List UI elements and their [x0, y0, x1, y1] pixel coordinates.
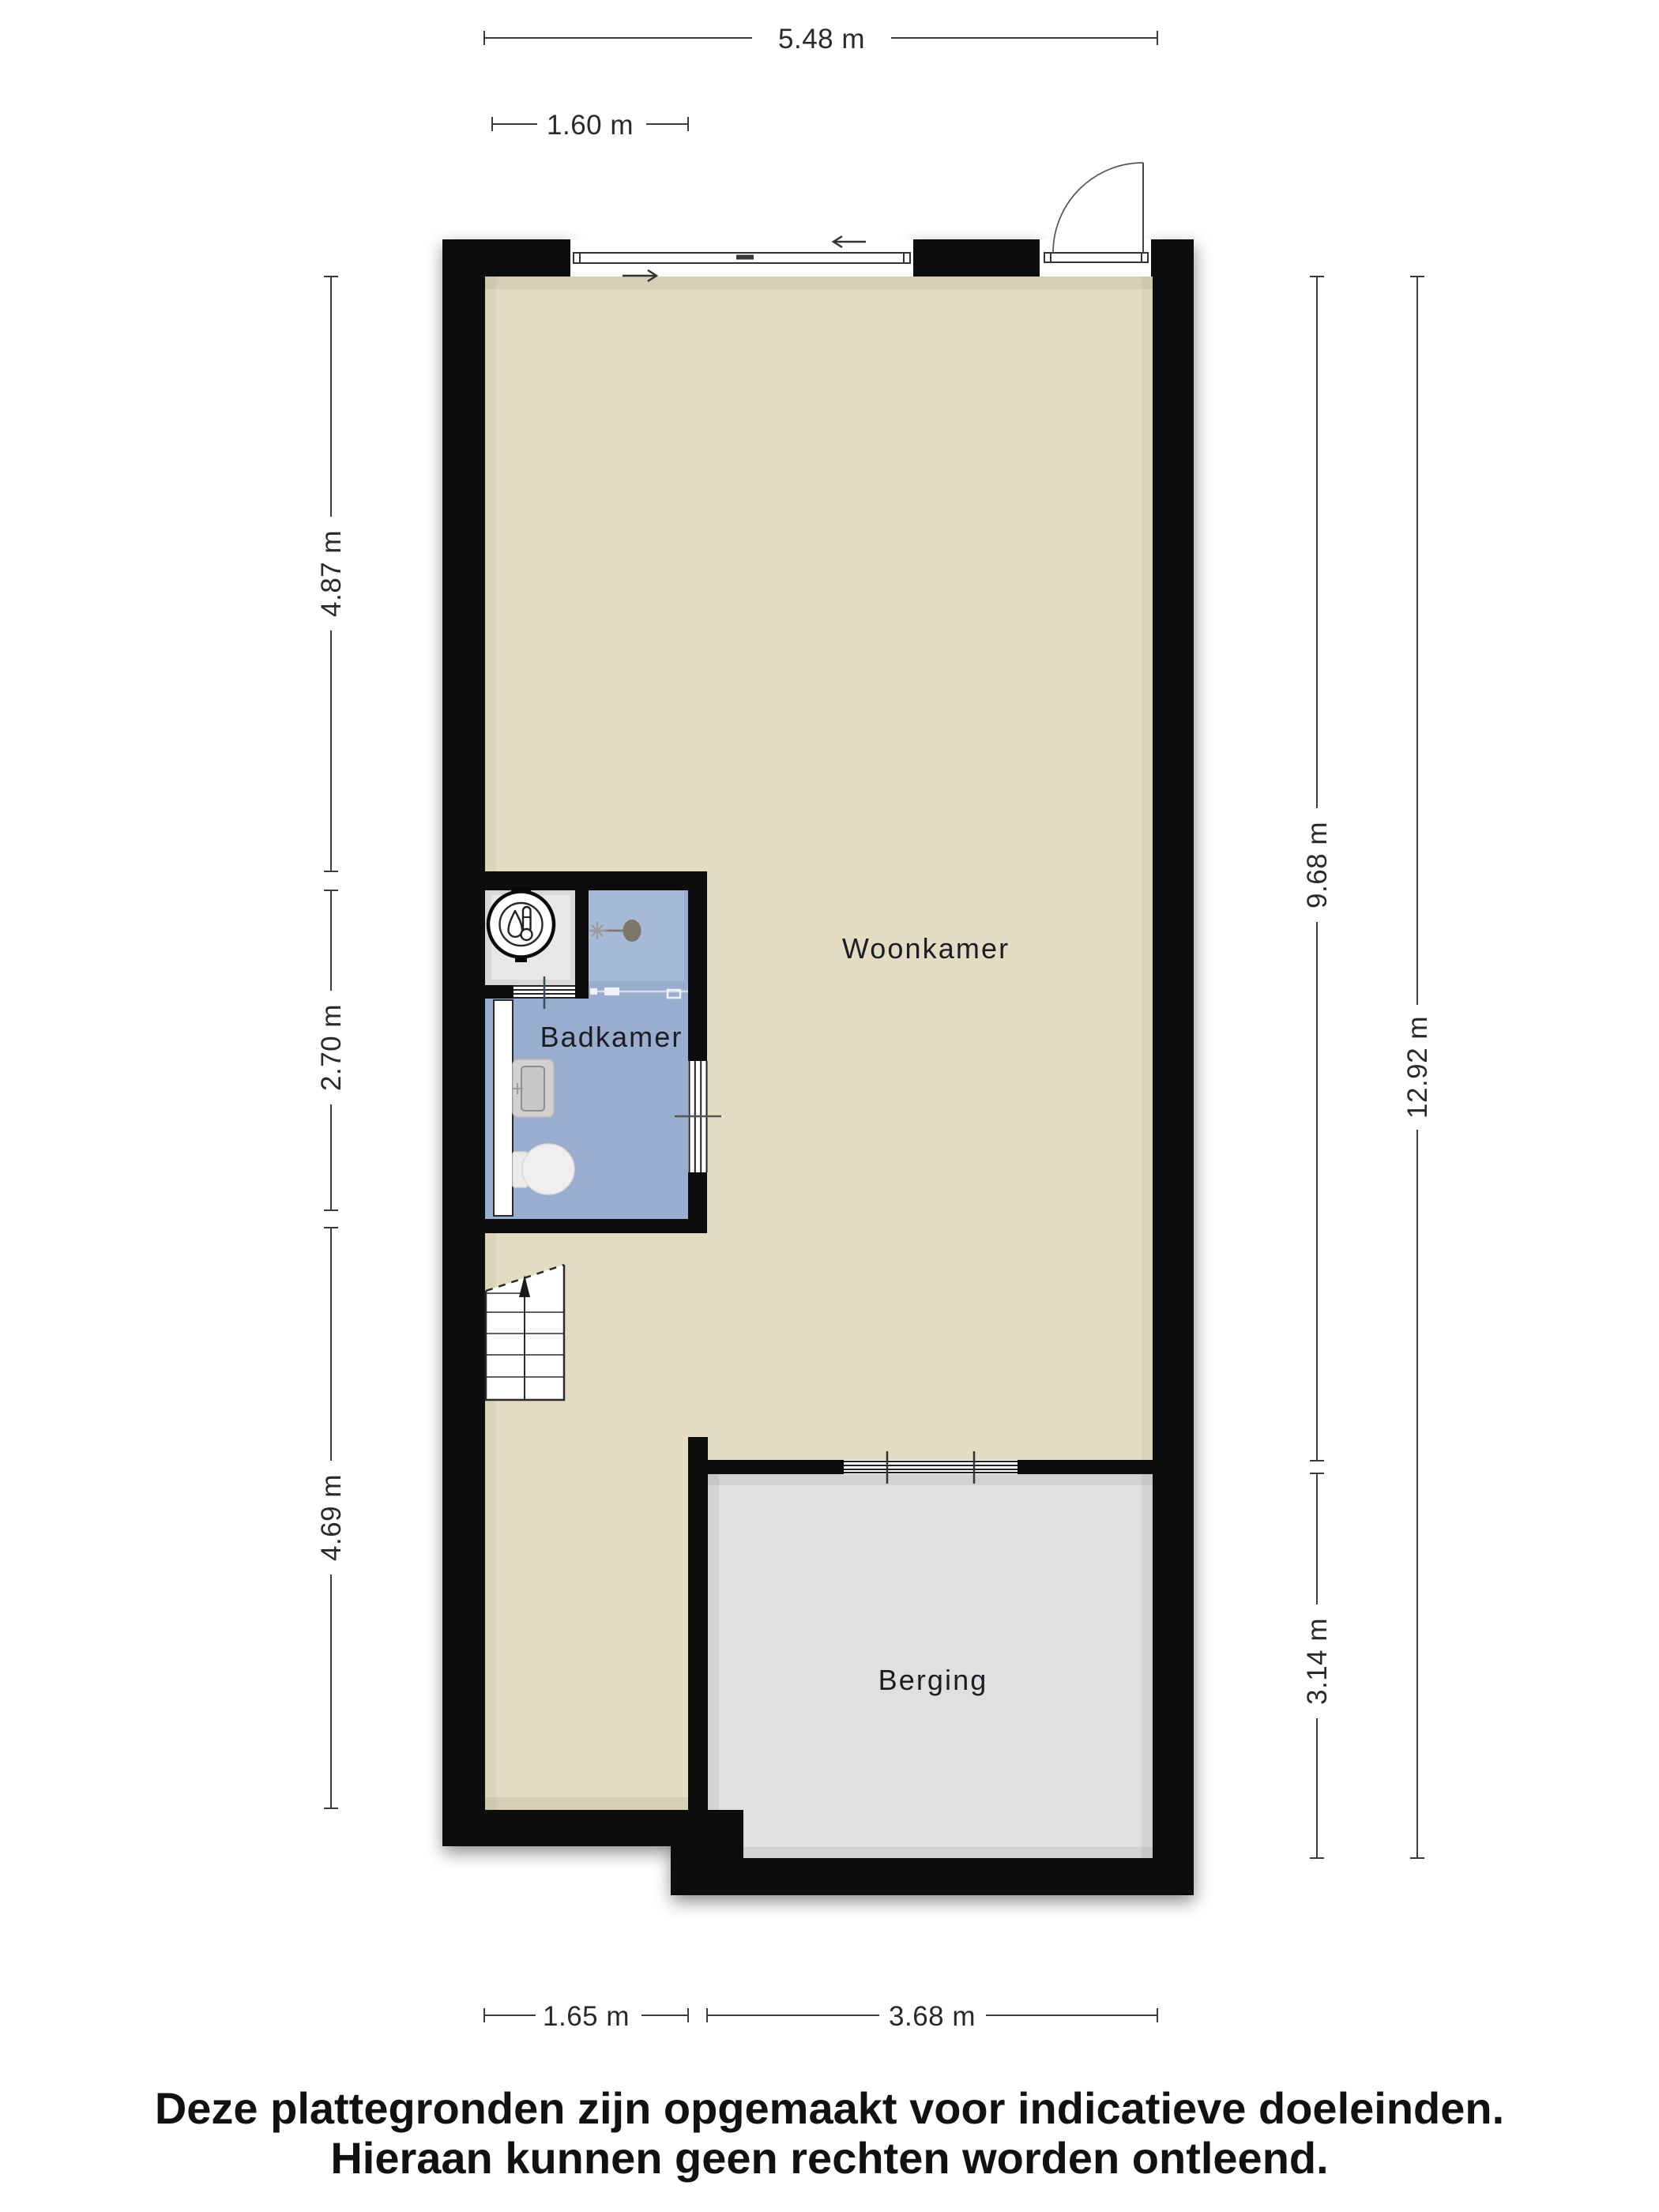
svg-text:Woonkamer: Woonkamer	[842, 932, 1010, 965]
svg-text:2.70 m: 2.70 m	[316, 1004, 347, 1091]
svg-text:4.87 m: 4.87 m	[316, 530, 347, 617]
svg-text:1.60 m: 1.60 m	[547, 110, 634, 141]
svg-text:Deze plattegronden zijn opgema: Deze plattegronden zijn opgemaakt voor i…	[155, 2083, 1504, 2133]
svg-text:12.92 m: 12.92 m	[1402, 1016, 1433, 1119]
svg-text:3.14 m: 3.14 m	[1302, 1618, 1333, 1705]
svg-text:5.48 m: 5.48 m	[778, 24, 865, 55]
svg-text:Berging: Berging	[878, 1664, 988, 1696]
svg-text:4.69 m: 4.69 m	[316, 1474, 347, 1561]
svg-text:9.68 m: 9.68 m	[1302, 822, 1333, 908]
svg-text:Hieraan kunnen geen rechten wo: Hieraan kunnen geen rechten worden ontle…	[330, 2133, 1328, 2183]
svg-text:1.65 m: 1.65 m	[543, 2001, 630, 2032]
svg-text:Badkamer: Badkamer	[540, 1021, 683, 1053]
svg-text:3.68 m: 3.68 m	[889, 2001, 976, 2032]
